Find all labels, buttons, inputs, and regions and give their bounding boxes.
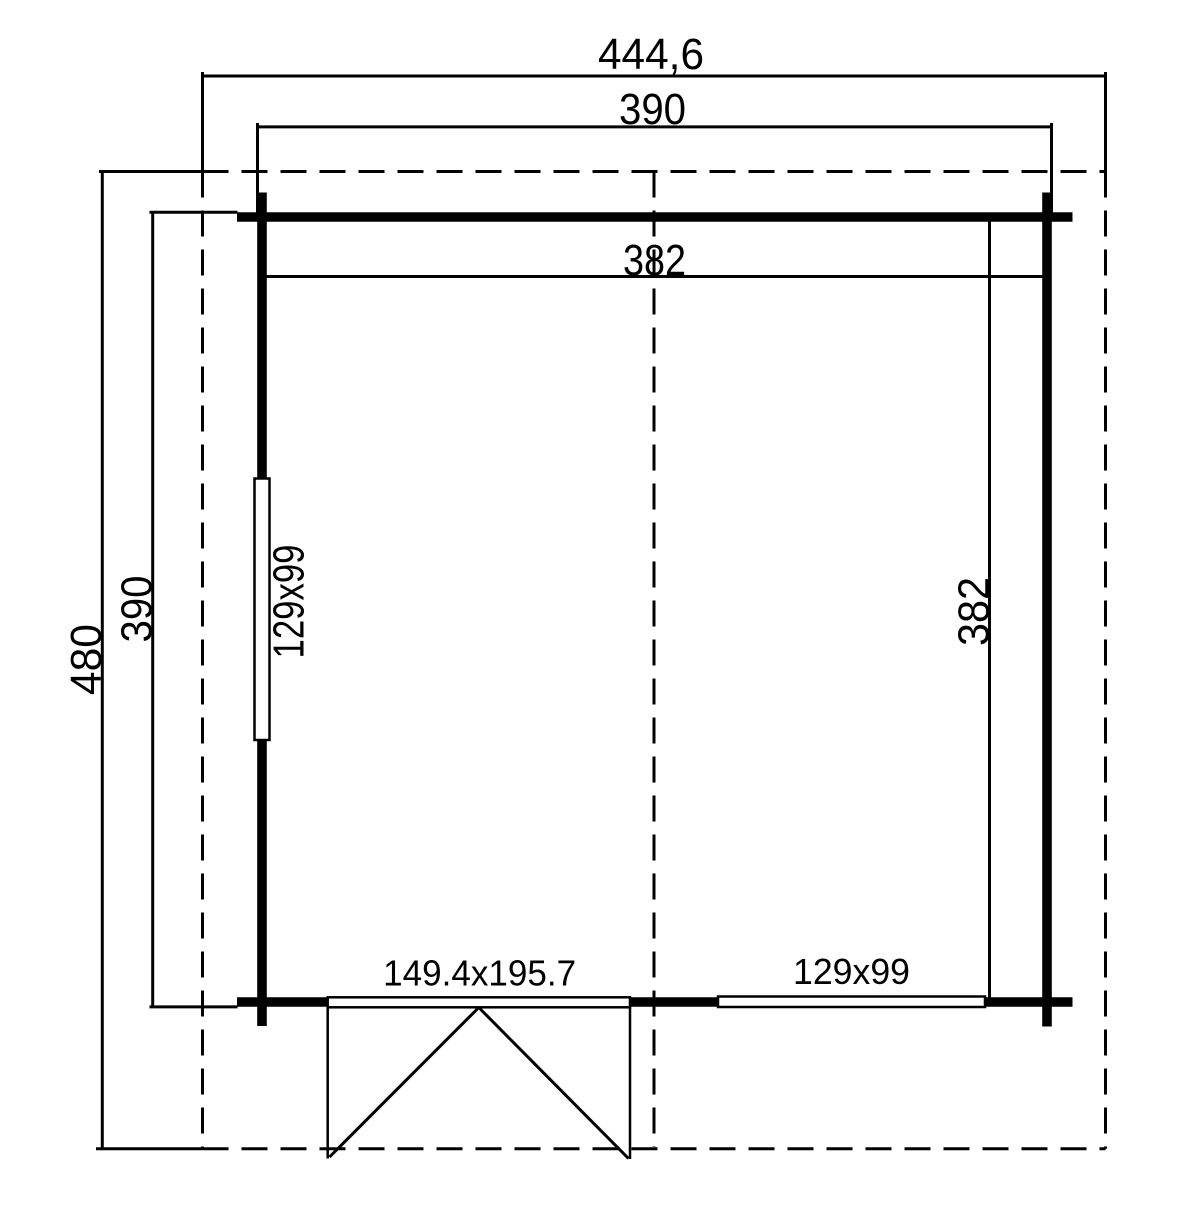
- svg-text:480: 480: [62, 624, 111, 695]
- svg-text:390: 390: [619, 85, 686, 134]
- svg-text:382: 382: [949, 577, 998, 646]
- svg-text:382: 382: [623, 236, 686, 285]
- svg-text:129x99: 129x99: [265, 545, 314, 659]
- svg-text:149.4x195.7: 149.4x195.7: [383, 953, 576, 994]
- svg-text:390: 390: [112, 576, 161, 643]
- svg-text:129x99: 129x99: [793, 951, 910, 992]
- svg-text:444,6: 444,6: [598, 30, 704, 79]
